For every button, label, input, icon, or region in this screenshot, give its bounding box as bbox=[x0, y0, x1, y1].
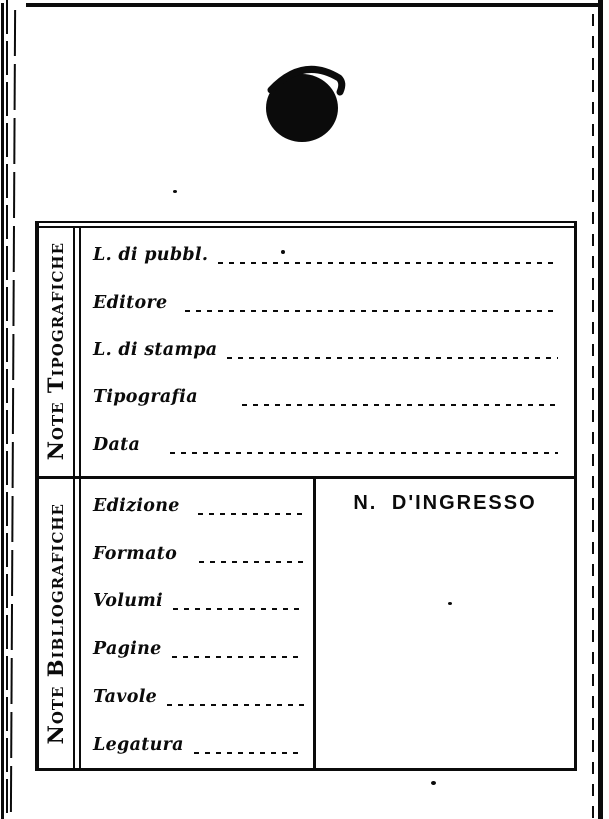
fill-in-dotted-line bbox=[198, 513, 304, 515]
field-row-tavole: Tavole bbox=[93, 685, 304, 709]
table-border-bottom bbox=[35, 768, 577, 771]
field-label: Volumi bbox=[93, 589, 163, 613]
section-label-note-tipografiche: Note Tipografiche bbox=[37, 229, 73, 474]
section-label-text: Note Tipografiche bbox=[43, 242, 68, 460]
field-label: Edizione bbox=[93, 494, 180, 518]
table-border-top bbox=[35, 221, 577, 223]
fill-in-dotted-line bbox=[199, 561, 304, 563]
label-column-divider bbox=[79, 226, 81, 770]
field-label: Legatura bbox=[93, 733, 184, 757]
page-edge-line bbox=[26, 3, 601, 7]
section-label-text: Note Bibliografiche bbox=[43, 503, 68, 744]
field-label: Tipografia bbox=[93, 385, 198, 409]
page-edge-line bbox=[1, 3, 4, 819]
field-row-pagine: Pagine bbox=[93, 637, 304, 661]
fill-in-dotted-line bbox=[242, 404, 558, 406]
scanned-library-card-page: Note Tipografiche Note Bibliografiche L.… bbox=[0, 0, 609, 819]
fill-in-dotted-line bbox=[218, 262, 558, 264]
ink-speck bbox=[173, 190, 177, 193]
field-label: L. di pubbl. bbox=[93, 243, 208, 267]
table-border-top bbox=[35, 226, 577, 228]
field-row-tipografia: Tipografia bbox=[93, 385, 558, 409]
field-label: L. di stampa bbox=[93, 338, 217, 362]
fill-in-dotted-line bbox=[194, 752, 304, 754]
entry-number-heading: N. D'INGRESSO bbox=[316, 492, 574, 515]
fill-in-dotted-line bbox=[185, 310, 558, 312]
fill-in-dotted-line bbox=[227, 357, 558, 359]
ink-blot bbox=[243, 48, 363, 158]
field-label: Data bbox=[93, 433, 140, 457]
fill-in-dotted-line bbox=[170, 452, 558, 454]
field-label: Editore bbox=[93, 291, 167, 315]
page-edge-line bbox=[10, 10, 16, 819]
field-row-legatura: Legatura bbox=[93, 733, 304, 757]
page-edge-line bbox=[598, 0, 603, 819]
fill-in-dotted-line bbox=[172, 656, 304, 658]
section-label-note-bibliografiche: Note Bibliografiche bbox=[37, 480, 73, 768]
field-row-volumi: Volumi bbox=[93, 589, 304, 613]
ink-speck bbox=[431, 781, 436, 785]
page-edge-line bbox=[6, 0, 8, 819]
ink-speck bbox=[448, 602, 452, 605]
section-divider-line bbox=[35, 476, 577, 479]
ingresso-column-divider bbox=[313, 476, 316, 770]
field-row-formato: Formato bbox=[93, 542, 304, 566]
fill-in-dotted-line bbox=[167, 704, 304, 706]
page-edge-line bbox=[592, 14, 594, 819]
field-row-data: Data bbox=[93, 433, 558, 457]
field-label: Tavole bbox=[93, 685, 157, 709]
field-row-l-di-pubbl: L. di pubbl. bbox=[93, 243, 558, 267]
field-row-l-di-stampa: L. di stampa bbox=[93, 338, 558, 362]
fill-in-dotted-line bbox=[173, 608, 304, 610]
field-row-editore: Editore bbox=[93, 291, 558, 315]
field-label: Formato bbox=[93, 542, 177, 566]
field-label: Pagine bbox=[93, 637, 162, 661]
field-row-edizione: Edizione bbox=[93, 494, 304, 518]
table-border-right bbox=[574, 221, 577, 771]
label-column-divider bbox=[73, 226, 75, 770]
